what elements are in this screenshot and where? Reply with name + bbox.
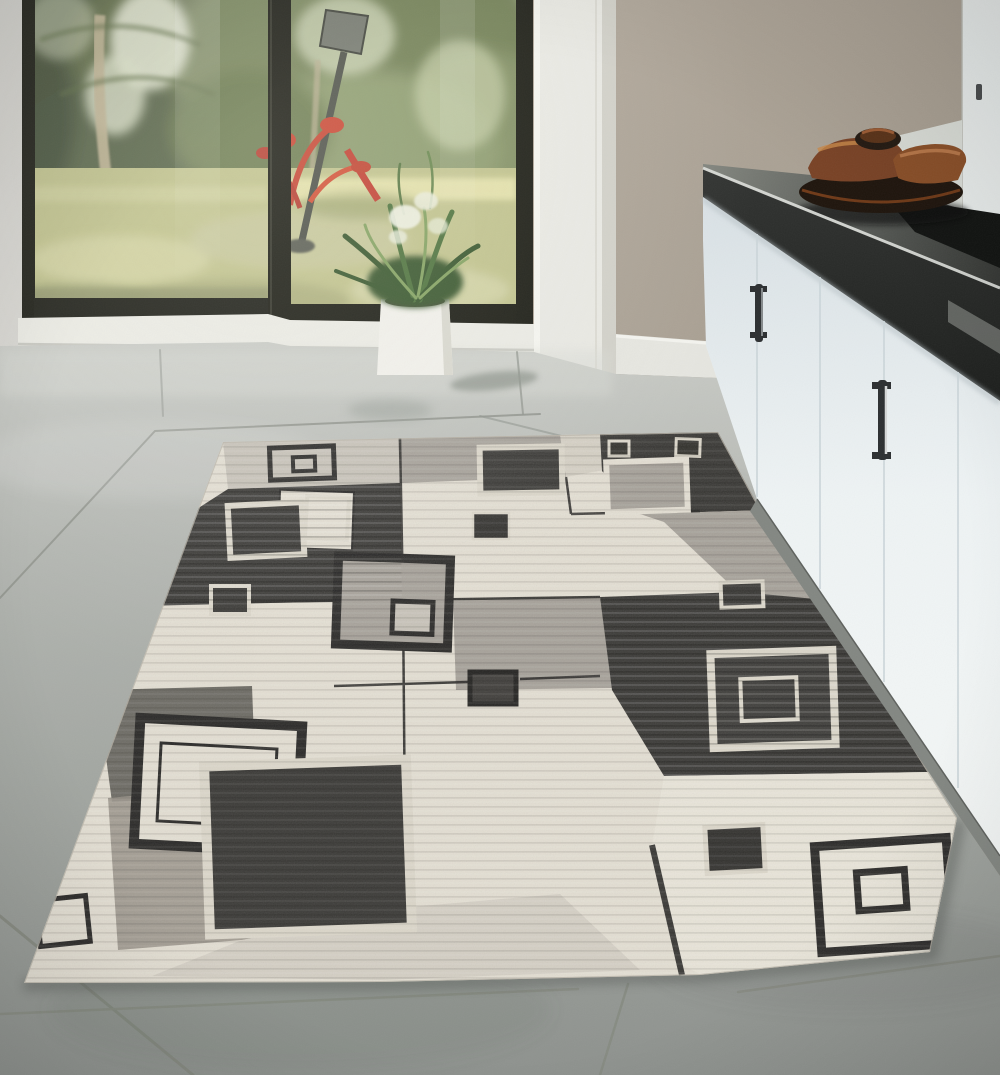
kitchen-rug-photo: Product photo: modern geometric area rug…: [0, 0, 1000, 1075]
photo-stage: Product photo: modern geometric area rug…: [0, 0, 1000, 1075]
vignette: [0, 0, 1000, 1075]
